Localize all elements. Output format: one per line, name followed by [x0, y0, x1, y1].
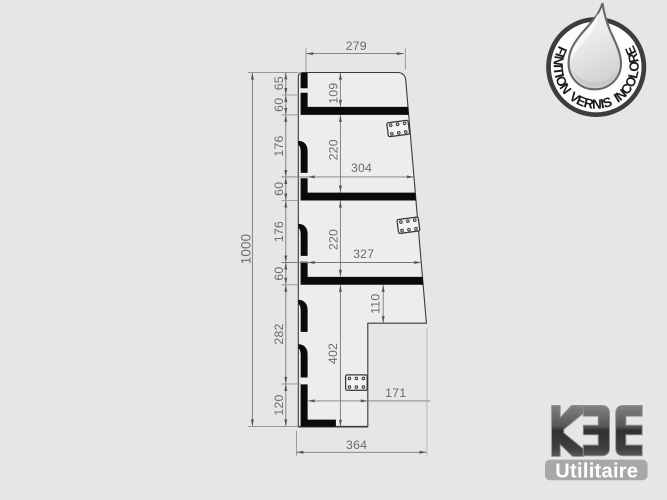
svg-text:220: 220 — [327, 139, 341, 160]
svg-text:60: 60 — [272, 182, 286, 196]
svg-text:327: 327 — [353, 247, 374, 261]
svg-text:402: 402 — [326, 343, 340, 364]
svg-text:176: 176 — [272, 221, 286, 242]
svg-text:60: 60 — [272, 98, 286, 112]
svg-text:65: 65 — [272, 76, 286, 90]
svg-text:279: 279 — [346, 39, 367, 53]
svg-text:282: 282 — [272, 323, 286, 344]
svg-text:176: 176 — [272, 135, 286, 156]
svg-text:110: 110 — [369, 294, 383, 314]
svg-text:60: 60 — [272, 267, 286, 281]
svg-text:120: 120 — [272, 394, 286, 415]
svg-text:220: 220 — [327, 229, 341, 250]
svg-text:364: 364 — [346, 438, 367, 452]
svg-text:109: 109 — [327, 83, 341, 104]
svg-text:Utilitaire: Utilitaire — [555, 461, 638, 483]
svg-text:1000: 1000 — [239, 234, 254, 265]
svg-text:171: 171 — [385, 386, 406, 400]
svg-text:304: 304 — [351, 161, 372, 175]
